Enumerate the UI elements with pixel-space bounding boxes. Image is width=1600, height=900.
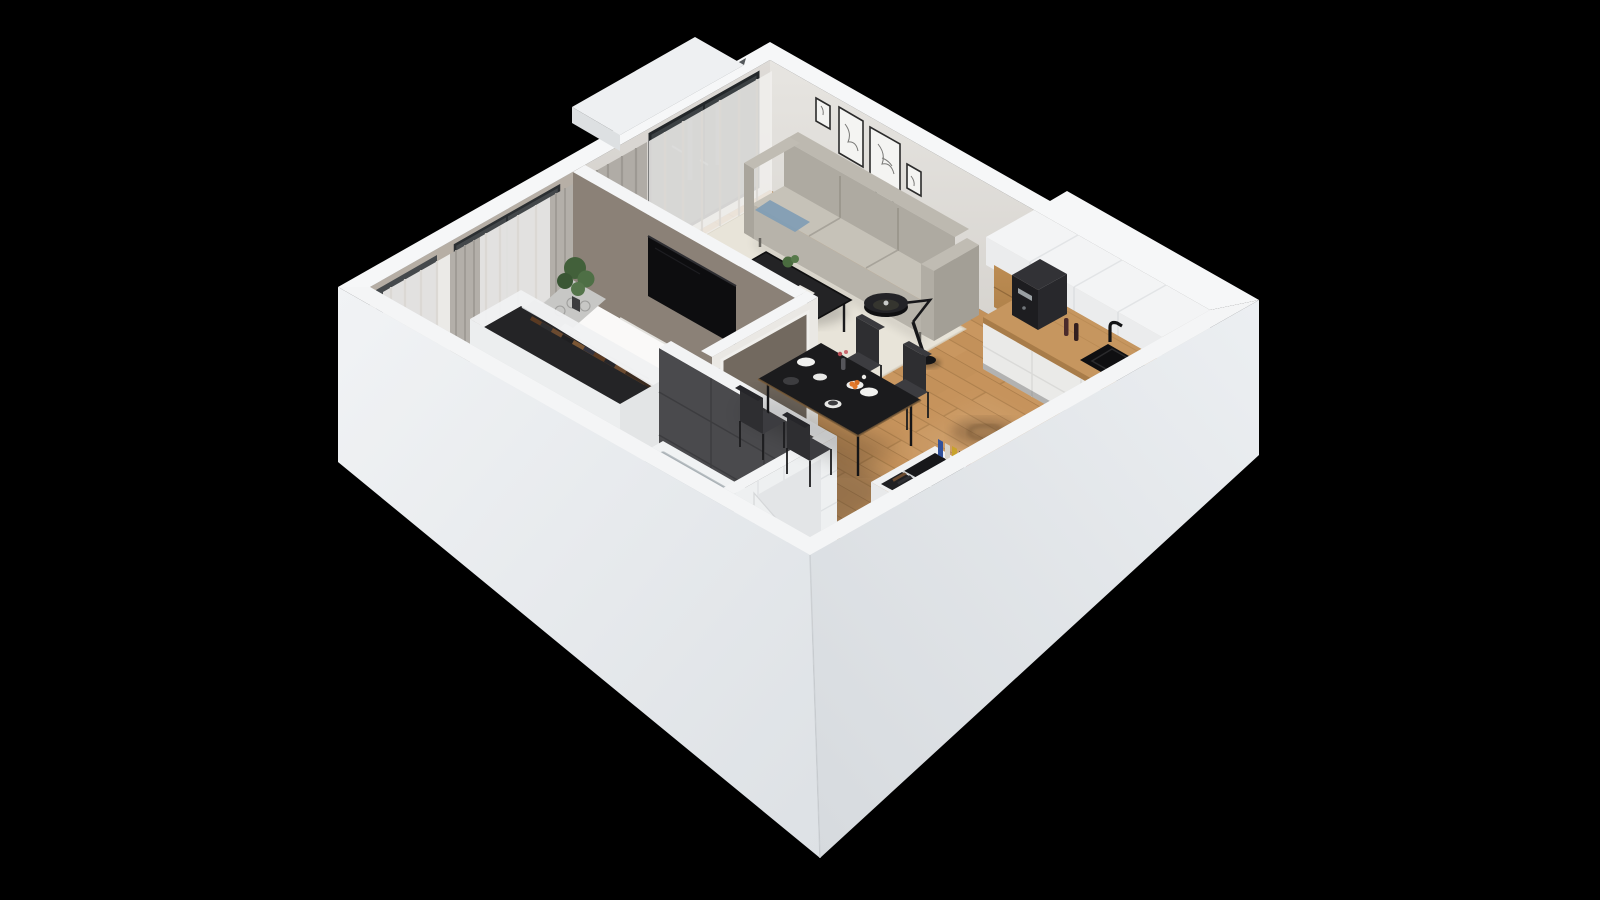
flower-vase: [841, 358, 846, 370]
floorplan-render: [0, 0, 1600, 900]
floorplan-svg: [0, 0, 1600, 900]
